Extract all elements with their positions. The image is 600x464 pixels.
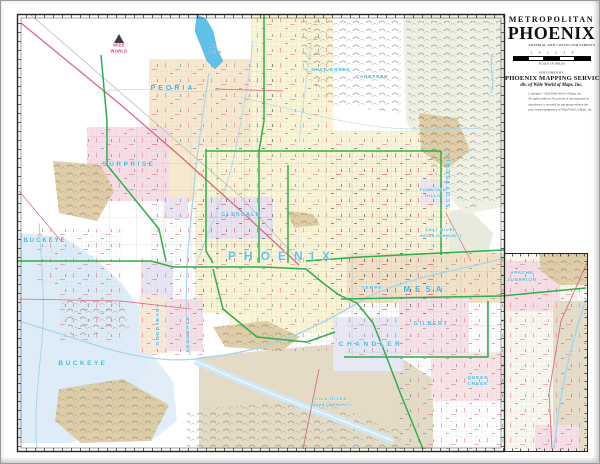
map-sheet: PEORIASURPRISEBUCKEYEBUCKEYEPHOENIXGLEND… xyxy=(0,0,600,464)
map-label: FOUNTAIN xyxy=(420,187,447,192)
map-label: GOODYEAR xyxy=(155,307,160,345)
map-label: SURPRISE xyxy=(102,161,155,168)
map-label: QUEEN xyxy=(467,375,488,380)
map-label: Lake xyxy=(208,43,217,48)
map-label: CREEK xyxy=(468,381,489,386)
map-label: SCOTTSDALE xyxy=(446,150,452,207)
map-label: CHANDLER xyxy=(339,341,403,348)
map-label: MESA xyxy=(403,285,446,294)
map-label: CAREFREE xyxy=(356,74,389,79)
copyright-block: Copyright © 2020 Wide World of Maps, Inc… xyxy=(505,91,598,113)
wide-world-logo: WIDE WORLD xyxy=(99,34,139,55)
map-label: SALT RIVER xyxy=(425,227,456,232)
map-label: Pleasant xyxy=(206,49,222,54)
scale-units-label: SCALE IN MILES xyxy=(532,63,571,66)
copyright-line: All rights reserved. No portion of this … xyxy=(528,98,575,101)
publisher-name: PHOENIX MAPPING SERVICE xyxy=(505,75,598,82)
mountain-icon xyxy=(114,34,124,43)
scale-bar-segments xyxy=(513,56,591,61)
map-label: APACHE xyxy=(510,270,533,275)
map-label: CAVE CREEK xyxy=(311,67,350,72)
map-label: GLENDALE xyxy=(221,212,261,218)
map-label: TEMPE xyxy=(362,285,383,290)
map-label: JUNCTION xyxy=(507,277,536,282)
copyright-line: reproduced or recorded by any means with… xyxy=(528,103,575,106)
logo-text-bottom: WORLD xyxy=(105,50,133,54)
logo-text-top: WIDE xyxy=(105,44,133,48)
map-label: INDIAN COMMUNITY xyxy=(420,234,463,238)
copyright-line: Copyright © 2020 Wide World of Maps, Inc… xyxy=(528,93,575,96)
map-subtitle: ARTERIAL AND COLLECTOR STREETS xyxy=(528,43,575,47)
map-label: INDIAN COMMUNITY xyxy=(310,403,353,407)
map-label: AVONDALE xyxy=(185,316,190,353)
map-title-block: METROPOLITAN PHOENIX ARTERIAL AND COLLEC… xyxy=(505,15,598,112)
scale-bar: 101234 SCALE IN MILES xyxy=(513,50,591,67)
map-label: BUCKEYE xyxy=(58,360,107,367)
map-label: PEORIA xyxy=(151,85,196,92)
map-label: PHOENIX xyxy=(228,249,338,263)
publisher-division: div. of Wide World of Maps, Inc. xyxy=(515,83,588,88)
map-label: GILA RIVER xyxy=(315,396,348,401)
scale-numbers: 101234 xyxy=(530,52,573,55)
map-label: HILLS xyxy=(425,193,441,198)
copyright-line: prior written permission of Wide World o… xyxy=(528,108,575,111)
published-by-label: PUBLISHED BY xyxy=(528,72,575,75)
map-label: BUCKEYE xyxy=(23,238,66,244)
map-title: PHOENIX xyxy=(505,24,598,43)
map-label: GILBERT xyxy=(414,321,449,327)
